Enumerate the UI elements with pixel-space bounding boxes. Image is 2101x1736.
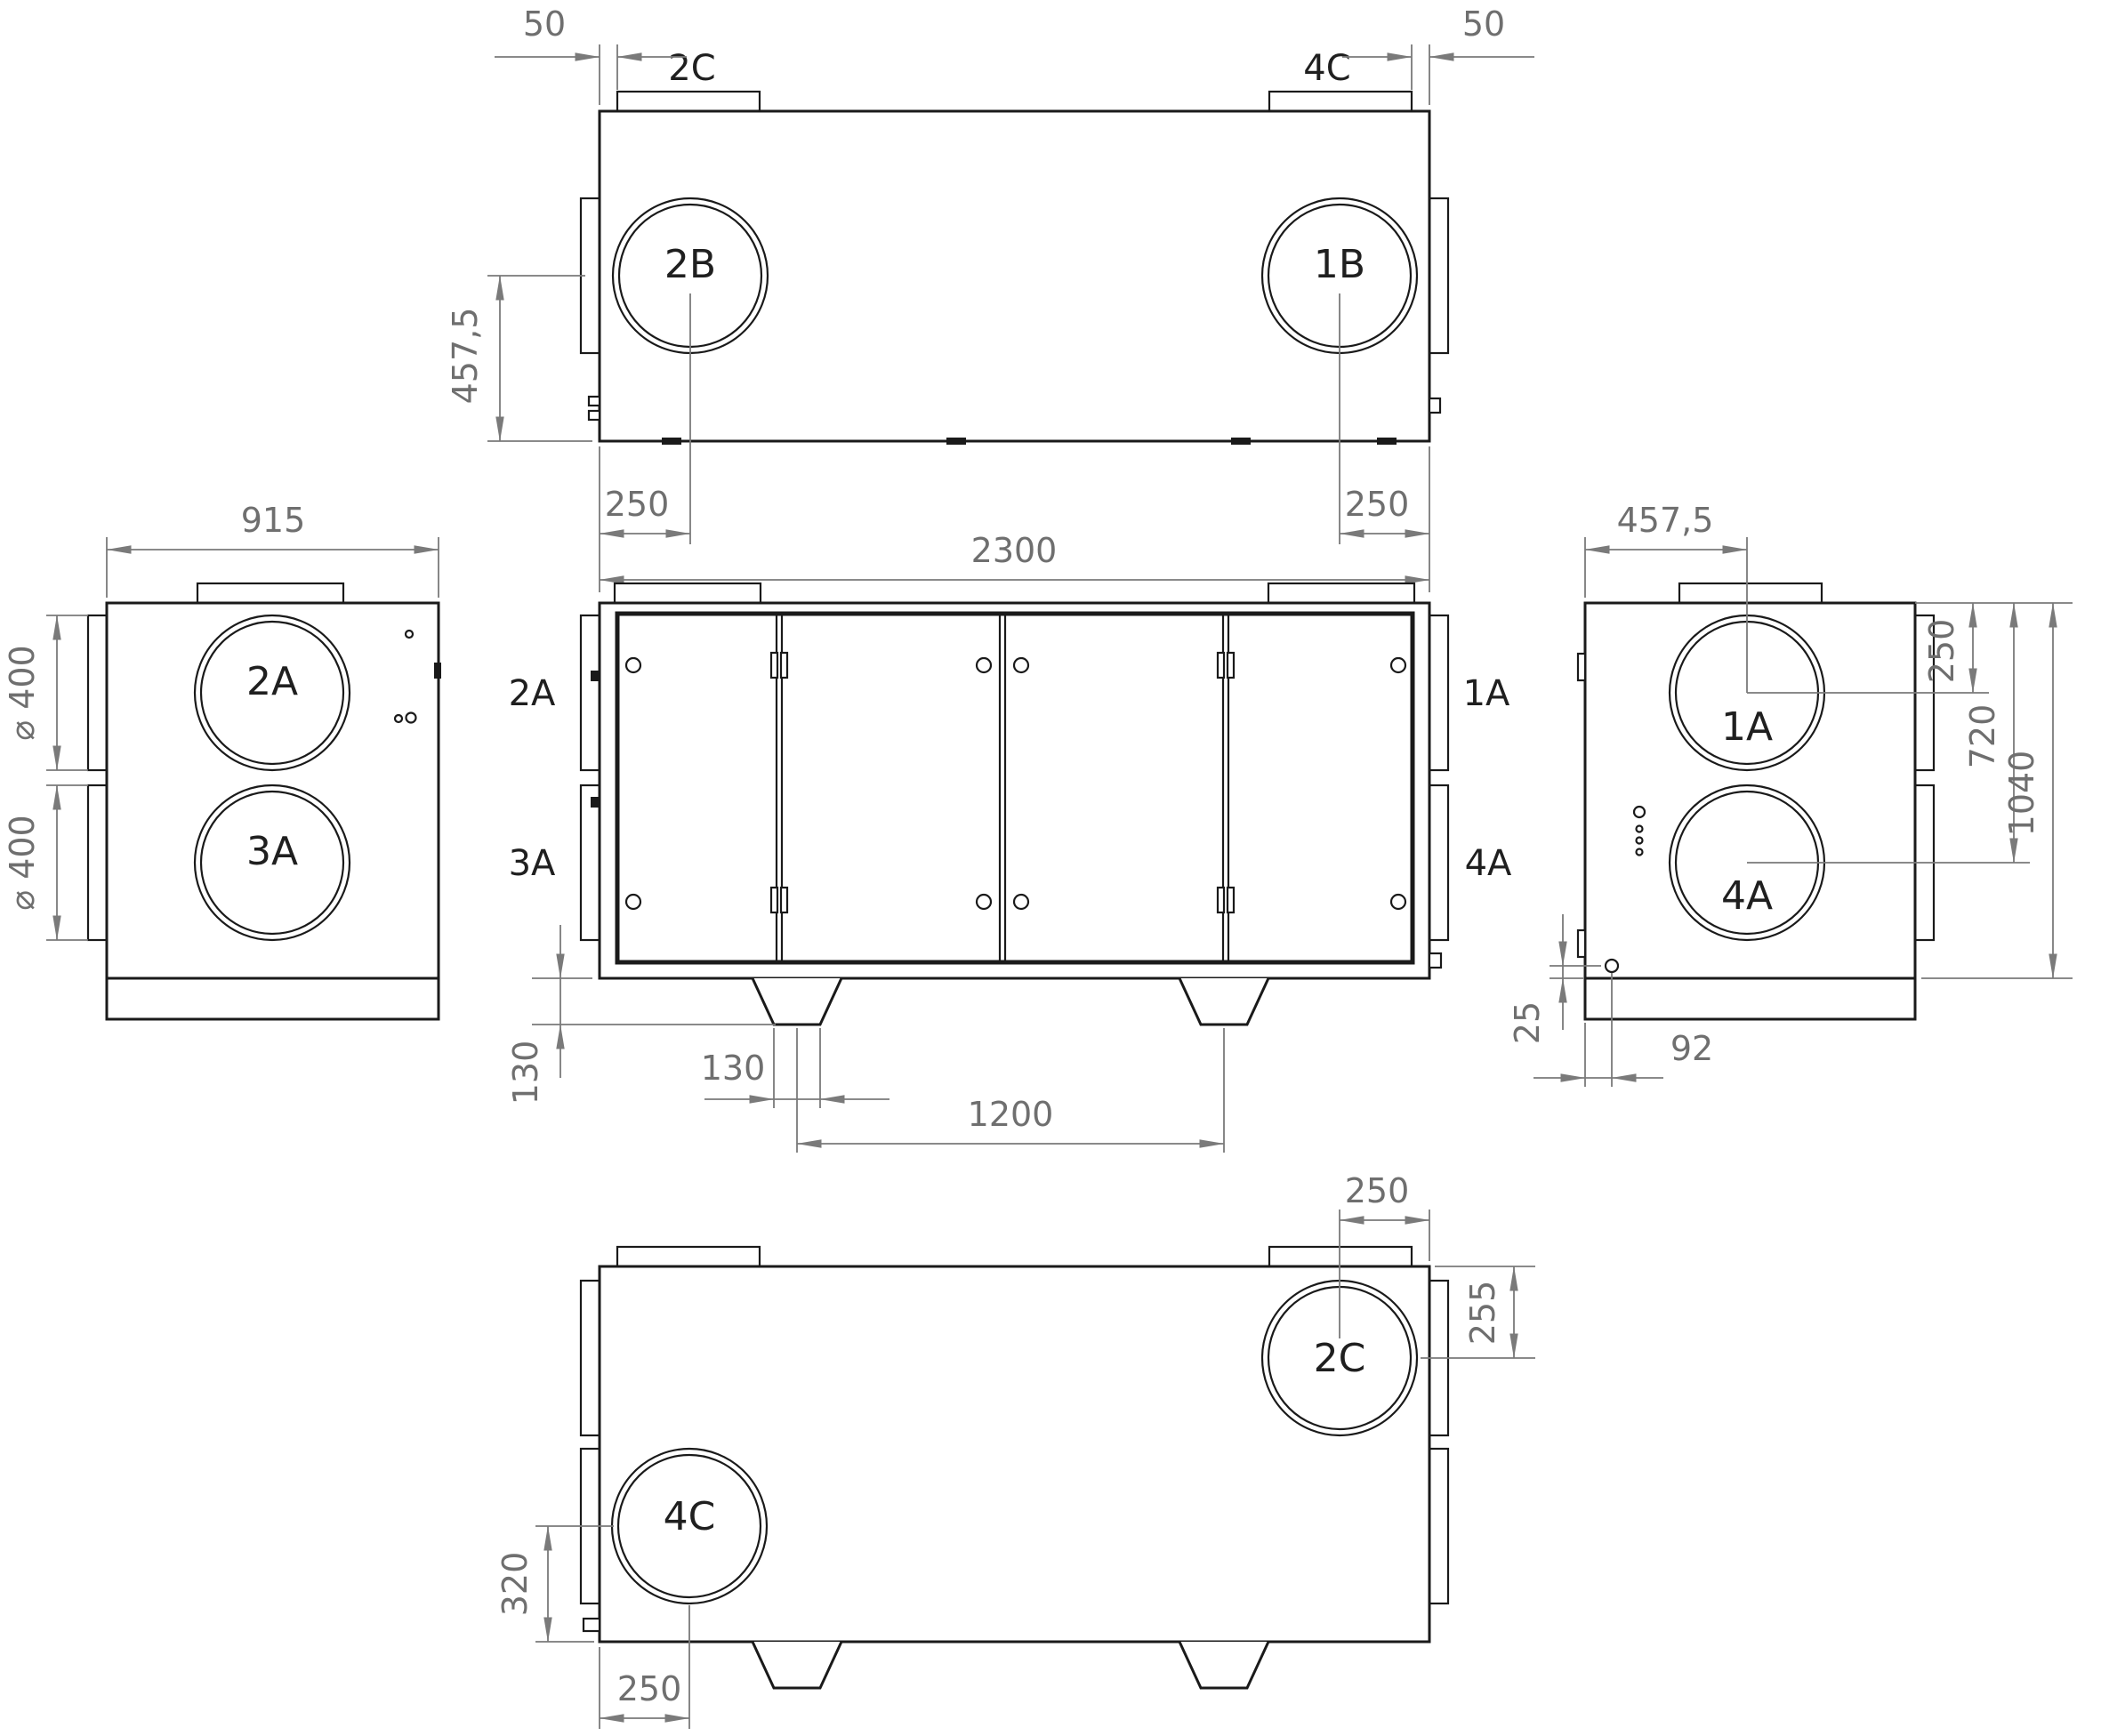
- foot-right: [1179, 1642, 1268, 1688]
- hinge: [771, 888, 777, 912]
- edge-tick: [1377, 438, 1397, 445]
- edge-tick: [1231, 438, 1251, 445]
- ext-lines-dia-upper: [46, 615, 88, 770]
- dim-25: 25: [1508, 1001, 1547, 1044]
- dim-255: 255: [1463, 1281, 1502, 1346]
- edge-detail: [1578, 654, 1585, 680]
- foot-right: [1179, 978, 1268, 1025]
- top-view-stub-4c: [1269, 92, 1412, 111]
- pin-hole: [395, 715, 402, 722]
- dim-320: 320: [495, 1552, 535, 1617]
- screw-hole: [1391, 658, 1405, 672]
- dim-92: 92: [1670, 1029, 1713, 1068]
- port-2b-label: 2B: [664, 242, 716, 287]
- rear-side-flange: [1429, 1449, 1448, 1603]
- left-side-view: 2A 3A 915 ⌀ 400 ⌀ 400: [3, 501, 441, 1019]
- port-1a-label: 1A: [1721, 704, 1773, 750]
- right-side-view: 1A 4A 457,5 250 720 1040 25 92: [1508, 501, 2073, 1087]
- dim-720: 720: [1963, 704, 2002, 769]
- ext-lines-dia-lower: [46, 785, 88, 940]
- latch-detail: [589, 411, 600, 420]
- front-label-2a: 2A: [509, 673, 556, 714]
- pin-hole: [407, 713, 416, 723]
- front-label-1a: 1A: [1463, 673, 1510, 714]
- dim-1040: 1040: [2002, 751, 2041, 837]
- port-2a-label: 2A: [246, 659, 298, 704]
- rear-side-flange: [581, 1281, 600, 1435]
- ext-lines-25: [1550, 966, 1601, 978]
- rear-view: 2C 4C 250 255 320 250: [495, 1171, 1535, 1729]
- left-view-base: [107, 978, 439, 1019]
- hinge: [1218, 653, 1224, 678]
- front-flange-2a: [581, 615, 600, 770]
- front-label-3a: 3A: [509, 843, 556, 884]
- latch-detail: [591, 797, 600, 808]
- ext-lines-50-right: [1412, 44, 1429, 105]
- ext-lines-130h: [532, 978, 776, 1025]
- dim-dia-lower: ⌀ 400: [3, 815, 42, 911]
- latch-detail: [1429, 953, 1441, 968]
- dim-50-left: 50: [523, 4, 566, 44]
- edge-notch: [434, 663, 441, 679]
- screw-hole: [977, 658, 991, 672]
- dim-250-left: 250: [605, 485, 670, 524]
- pin-hole: [1637, 849, 1643, 856]
- ext-lines-915: [107, 537, 439, 598]
- dim-2300: 2300: [971, 531, 1058, 570]
- hinge: [781, 888, 787, 912]
- technical-drawing: 2B 1B 2C 4C 50 50 457,5 250 250 2300: [0, 0, 2101, 1736]
- screw-hole: [626, 895, 640, 909]
- port-4a-label: 4A: [1721, 873, 1773, 919]
- door-divider-2: [1000, 614, 1005, 962]
- rear-top-stub-left: [617, 1247, 760, 1266]
- port-1b-label: 1B: [1314, 242, 1365, 287]
- drawing-canvas: 2B 1B 2C 4C 50 50 457,5 250 250 2300: [0, 0, 2101, 1736]
- dim-250-top: 250: [1345, 1171, 1410, 1210]
- screw-hole: [626, 658, 640, 672]
- left-flange-3a: [88, 785, 107, 940]
- ext-lines-92: [1585, 973, 1612, 1087]
- stub-2c-label: 2C: [668, 48, 715, 89]
- hinge: [781, 653, 787, 678]
- dim-130-height: 130: [506, 1041, 545, 1105]
- front-flange-3a: [581, 785, 600, 940]
- ext-lines-1200: [797, 1028, 1224, 1153]
- front-label-4a: 4A: [1465, 843, 1512, 884]
- hinge: [771, 653, 777, 678]
- hinge: [1218, 888, 1224, 912]
- dim-dia-upper: ⌀ 400: [3, 645, 42, 741]
- latch-detail: [584, 1619, 600, 1631]
- top-view-side-flange-right: [1429, 198, 1448, 353]
- top-view-stub-2c: [617, 92, 760, 111]
- right-view-base: [1585, 978, 1915, 1019]
- rear-top-stub-right: [1269, 1247, 1412, 1266]
- dim-130-width: 130: [701, 1049, 766, 1088]
- hinge: [1228, 653, 1234, 678]
- hinge: [1228, 888, 1234, 912]
- right-top-stub: [1679, 583, 1822, 603]
- dim-4575-top: 457,5: [446, 308, 485, 405]
- dim-50-right: 50: [1462, 4, 1505, 44]
- port-2c-label: 2C: [1314, 1336, 1366, 1381]
- screw-hole: [1014, 895, 1028, 909]
- dim-1200: 1200: [968, 1095, 1054, 1134]
- ext-lines-250-bottom: [600, 1605, 689, 1729]
- ext-lines-4575-top: [487, 276, 592, 441]
- dim-250-right: 250: [1345, 485, 1410, 524]
- screw-hole: [1391, 895, 1405, 909]
- edge-detail: [1578, 930, 1585, 957]
- latch-detail: [1429, 398, 1440, 413]
- pin-hole: [1637, 838, 1643, 844]
- port-4c-label: 4C: [664, 1494, 716, 1539]
- ext-lines-50-left: [600, 44, 617, 105]
- edge-tick: [946, 438, 966, 445]
- foot-left: [753, 1642, 841, 1688]
- screw-hole: [977, 895, 991, 909]
- port-3a-label: 3A: [246, 829, 298, 874]
- rear-view-outline: [600, 1266, 1429, 1642]
- left-top-stub: [197, 583, 343, 603]
- dim-915: 915: [241, 501, 306, 540]
- ext-lines-250-top: [1340, 1210, 1429, 1338]
- foot-left: [753, 978, 841, 1025]
- pin-hole: [1634, 807, 1645, 817]
- left-flange-2a: [88, 615, 107, 770]
- top-view: 2B 1B 2C 4C 50 50 457,5 250 250: [446, 4, 1534, 592]
- edge-tick: [662, 438, 681, 445]
- pin-hole: [1637, 826, 1643, 832]
- front-flange-1a: [1429, 615, 1448, 770]
- ext-lines-length: [600, 446, 1429, 592]
- dim-250: 250: [1922, 619, 1961, 684]
- stub-4c-label: 4C: [1303, 48, 1350, 89]
- front-top-stub-left: [615, 583, 761, 603]
- screw-hole: [1014, 658, 1028, 672]
- front-top-stub-right: [1268, 583, 1414, 603]
- front-view-outline: [600, 603, 1429, 978]
- latch-detail: [589, 397, 600, 406]
- front-flange-4a: [1429, 785, 1448, 940]
- front-view: 2300 2A: [506, 531, 1512, 1153]
- drain-hole: [1606, 960, 1618, 972]
- top-view-outline: [600, 111, 1429, 441]
- dim-250-bottom: 250: [617, 1669, 682, 1708]
- pin-hole: [406, 631, 413, 638]
- dim-4575-right: 457,5: [1617, 501, 1714, 540]
- latch-detail: [591, 671, 600, 681]
